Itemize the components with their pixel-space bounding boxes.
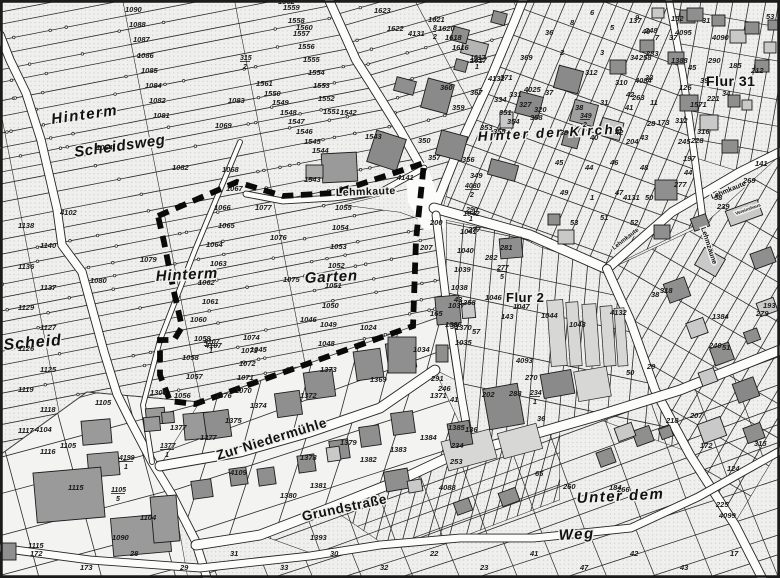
- svg-text:4104: 4104: [34, 425, 53, 434]
- svg-text:1545: 1545: [304, 137, 322, 146]
- svg-text:1085: 1085: [141, 66, 159, 75]
- svg-text:36: 36: [537, 414, 546, 423]
- svg-text:1369: 1369: [370, 375, 388, 384]
- svg-text:22: 22: [429, 549, 439, 558]
- svg-text:Flur 31: Flur 31: [706, 73, 755, 89]
- svg-text:45: 45: [554, 158, 564, 167]
- svg-text:1048: 1048: [318, 339, 336, 348]
- svg-text:1069: 1069: [215, 121, 233, 130]
- svg-text:318: 318: [660, 286, 673, 295]
- svg-text:1383: 1383: [390, 445, 408, 454]
- svg-text:1051: 1051: [325, 281, 342, 290]
- svg-text:1034: 1034: [413, 345, 431, 354]
- svg-text:4093: 4093: [515, 356, 534, 365]
- svg-text:1137: 1137: [40, 283, 57, 292]
- svg-text:359: 359: [452, 103, 465, 112]
- svg-text:137: 137: [629, 16, 642, 25]
- svg-text:1082: 1082: [172, 163, 190, 172]
- svg-text:350: 350: [418, 136, 431, 145]
- svg-text:2: 2: [469, 192, 474, 199]
- svg-text:41: 41: [624, 103, 633, 112]
- svg-text:310: 310: [615, 78, 628, 87]
- svg-text:4132: 4132: [609, 308, 628, 317]
- svg-text:185: 185: [729, 61, 742, 70]
- svg-text:1105: 1105: [60, 441, 77, 450]
- svg-text:1546: 1546: [296, 127, 314, 136]
- svg-text:37: 37: [545, 88, 554, 97]
- svg-text:44: 44: [584, 163, 594, 172]
- svg-text:1555: 1555: [303, 55, 321, 64]
- svg-text:246: 246: [437, 384, 451, 393]
- svg-text:4199: 4199: [118, 455, 135, 462]
- svg-text:1306: 1306: [150, 388, 168, 397]
- svg-text:1: 1: [165, 452, 169, 459]
- svg-text:42: 42: [614, 128, 624, 137]
- svg-text:1621: 1621: [428, 15, 445, 24]
- svg-text:1377: 1377: [160, 443, 177, 450]
- svg-text:124: 124: [727, 464, 740, 473]
- svg-text:1620: 1620: [438, 24, 456, 33]
- svg-text:288: 288: [508, 389, 522, 398]
- svg-text:4109: 4109: [229, 468, 248, 477]
- svg-text:1378: 1378: [300, 453, 318, 462]
- svg-text:234: 234: [450, 441, 464, 450]
- svg-text:1: 1: [475, 64, 479, 71]
- svg-text:4025: 4025: [523, 85, 542, 94]
- svg-text:31: 31: [230, 549, 238, 558]
- svg-text:36: 36: [545, 28, 554, 37]
- svg-text:172: 172: [700, 441, 713, 450]
- svg-text:30: 30: [330, 549, 339, 558]
- svg-text:1549: 1549: [272, 98, 290, 107]
- svg-text:245: 245: [677, 137, 691, 146]
- svg-text:1543: 1543: [365, 132, 383, 141]
- svg-text:4080: 4080: [464, 183, 481, 190]
- svg-text:1065: 1065: [218, 221, 236, 230]
- svg-text:315: 315: [240, 55, 252, 62]
- svg-text:1119: 1119: [18, 385, 34, 394]
- svg-text:136: 136: [465, 425, 478, 434]
- svg-text:1617: 1617: [470, 55, 487, 62]
- svg-text:357: 357: [428, 153, 441, 162]
- svg-text:270: 270: [524, 373, 538, 382]
- svg-text:51: 51: [722, 343, 730, 352]
- svg-text:260: 260: [562, 482, 576, 491]
- svg-text:320: 320: [534, 105, 547, 114]
- svg-text:28: 28: [129, 549, 139, 558]
- svg-text:1127: 1127: [40, 323, 57, 332]
- svg-text:172: 172: [30, 549, 43, 558]
- svg-text:277: 277: [673, 180, 687, 189]
- svg-text:1090: 1090: [112, 533, 130, 542]
- svg-text:39: 39: [560, 128, 569, 137]
- svg-text:1384: 1384: [712, 312, 730, 321]
- svg-text:1543: 1543: [304, 175, 322, 184]
- svg-text:1084: 1084: [145, 81, 163, 90]
- svg-text:28: 28: [646, 119, 656, 128]
- svg-text:269: 269: [742, 176, 756, 185]
- svg-text:1560: 1560: [296, 23, 314, 32]
- svg-text:1561: 1561: [256, 79, 273, 88]
- svg-text:367: 367: [470, 88, 483, 97]
- svg-text:126: 126: [679, 83, 692, 92]
- svg-text:1548: 1548: [280, 108, 298, 117]
- svg-text:1376: 1376: [215, 391, 233, 400]
- svg-text:1067: 1067: [226, 184, 244, 193]
- svg-text:1076: 1076: [270, 233, 288, 242]
- svg-text:1374: 1374: [250, 401, 268, 410]
- svg-text:5: 5: [116, 496, 120, 503]
- svg-text:1090: 1090: [125, 5, 143, 14]
- svg-text:1072: 1072: [239, 359, 257, 368]
- svg-text:277: 277: [496, 265, 510, 272]
- svg-text:29: 29: [179, 563, 189, 572]
- svg-text:33: 33: [450, 322, 459, 331]
- svg-text:4107: 4107: [203, 339, 221, 346]
- svg-text:23: 23: [479, 563, 489, 572]
- svg-text:1063: 1063: [210, 259, 228, 268]
- svg-text:1086: 1086: [137, 51, 155, 60]
- svg-text:1052: 1052: [328, 261, 346, 270]
- svg-text:1547: 1547: [288, 117, 306, 126]
- svg-text:1: 1: [469, 216, 473, 223]
- svg-text:1046: 1046: [485, 293, 503, 302]
- svg-text:248: 248: [644, 26, 658, 35]
- svg-text:34: 34: [630, 53, 639, 62]
- svg-text:1129: 1129: [18, 303, 35, 312]
- svg-text:1136: 1136: [18, 262, 35, 271]
- svg-text:263: 263: [631, 93, 645, 102]
- svg-text:239: 239: [716, 202, 730, 211]
- svg-text:1384: 1384: [420, 433, 438, 442]
- svg-text:1054: 1054: [332, 223, 350, 232]
- svg-text:282: 282: [484, 253, 498, 262]
- svg-text:53: 53: [766, 12, 775, 21]
- svg-text:1373: 1373: [320, 365, 338, 374]
- svg-text:1372: 1372: [300, 391, 318, 400]
- svg-text:34: 34: [722, 89, 731, 98]
- svg-text:33: 33: [280, 563, 289, 572]
- svg-text:4131: 4131: [407, 29, 425, 38]
- svg-text:1079: 1079: [140, 255, 158, 264]
- svg-text:17: 17: [730, 549, 739, 558]
- svg-text:1358: 1358: [459, 298, 477, 307]
- svg-text:1060: 1060: [190, 315, 208, 324]
- svg-text:1105: 1105: [111, 487, 126, 494]
- svg-text:1071: 1071: [237, 373, 254, 382]
- svg-text:1047: 1047: [513, 302, 531, 311]
- svg-text:65: 65: [535, 469, 544, 478]
- svg-text:369: 369: [520, 53, 533, 62]
- svg-text:1040: 1040: [457, 246, 475, 255]
- svg-text:279: 279: [755, 309, 769, 318]
- svg-text:4131: 4131: [622, 193, 640, 202]
- svg-text:1554: 1554: [308, 68, 326, 77]
- svg-text:4095: 4095: [674, 28, 693, 37]
- svg-text:51: 51: [600, 213, 608, 222]
- svg-text:349: 349: [470, 171, 483, 180]
- svg-text:41: 41: [449, 395, 458, 404]
- svg-text:221: 221: [706, 94, 720, 103]
- svg-text:1056: 1056: [174, 391, 192, 400]
- svg-text:4141: 4141: [396, 173, 414, 182]
- svg-text:1388: 1388: [671, 56, 689, 65]
- svg-text:1083: 1083: [228, 96, 246, 105]
- svg-text:1140: 1140: [40, 241, 57, 250]
- svg-text:49: 49: [559, 188, 569, 197]
- svg-text:1138: 1138: [18, 221, 35, 230]
- svg-text:1061: 1061: [202, 297, 219, 306]
- svg-text:52: 52: [630, 218, 639, 227]
- svg-text:1082: 1082: [149, 96, 167, 105]
- svg-text:349: 349: [580, 113, 592, 120]
- svg-text:355: 355: [493, 127, 506, 136]
- svg-text:1550: 1550: [264, 89, 282, 98]
- svg-text:1064: 1064: [96, 143, 114, 152]
- svg-text:40: 40: [589, 133, 599, 142]
- svg-text:1622: 1622: [387, 24, 405, 33]
- svg-text:50: 50: [645, 193, 654, 202]
- svg-text:207: 207: [419, 243, 433, 252]
- svg-text:1024: 1024: [360, 323, 378, 332]
- svg-text:1126: 1126: [18, 344, 35, 353]
- svg-text:43: 43: [639, 133, 649, 142]
- svg-text:29: 29: [646, 362, 656, 371]
- svg-text:152: 152: [671, 14, 684, 23]
- svg-text:1616: 1616: [452, 43, 470, 52]
- svg-text:46: 46: [609, 158, 619, 167]
- svg-text:1046: 1046: [300, 315, 318, 324]
- svg-text:1544: 1544: [312, 146, 330, 155]
- svg-text:1066: 1066: [214, 203, 232, 212]
- svg-text:1: 1: [533, 399, 537, 406]
- svg-text:1044: 1044: [541, 311, 559, 320]
- svg-text:281: 281: [499, 243, 513, 252]
- svg-text:1049: 1049: [320, 320, 338, 329]
- svg-text:228: 228: [690, 136, 704, 145]
- svg-text:1081: 1081: [153, 111, 170, 120]
- svg-text:351: 351: [499, 108, 512, 117]
- svg-text:234: 234: [529, 390, 542, 397]
- svg-text:1393: 1393: [310, 533, 328, 542]
- svg-text:38: 38: [651, 290, 660, 299]
- svg-text:41: 41: [529, 549, 538, 558]
- svg-text:1377: 1377: [200, 433, 218, 442]
- svg-text:50: 50: [626, 368, 635, 377]
- svg-text:1385: 1385: [448, 423, 466, 432]
- svg-text:1104: 1104: [140, 513, 157, 522]
- svg-text:4102: 4102: [59, 208, 78, 217]
- svg-text:38: 38: [575, 103, 584, 112]
- svg-text:173: 173: [657, 118, 670, 127]
- svg-text:2: 2: [582, 122, 587, 129]
- svg-text:1070: 1070: [235, 386, 253, 395]
- svg-text:197: 197: [683, 154, 696, 163]
- svg-text:207: 207: [689, 411, 703, 420]
- svg-text:4099: 4099: [718, 511, 737, 520]
- svg-text:291: 291: [430, 374, 444, 383]
- svg-text:1058: 1058: [182, 353, 200, 362]
- svg-text:1: 1: [124, 464, 128, 471]
- svg-text:358: 358: [530, 113, 543, 122]
- svg-text:1074: 1074: [243, 333, 261, 342]
- svg-text:45: 45: [687, 63, 697, 72]
- svg-text:312: 312: [585, 68, 598, 77]
- svg-text:1087: 1087: [133, 35, 151, 44]
- svg-text:290: 290: [465, 207, 478, 214]
- svg-text:1623: 1623: [374, 6, 392, 15]
- svg-text:225: 225: [715, 500, 729, 509]
- svg-text:1039: 1039: [454, 265, 472, 274]
- svg-text:356: 356: [462, 155, 475, 164]
- svg-text:44: 44: [683, 168, 693, 177]
- svg-text:312: 312: [675, 116, 688, 125]
- svg-text:1381: 1381: [310, 481, 327, 490]
- svg-text:53: 53: [570, 218, 579, 227]
- svg-text:1077: 1077: [255, 203, 273, 212]
- svg-text:1064: 1064: [206, 240, 224, 249]
- svg-text:31: 31: [702, 16, 710, 25]
- svg-text:173: 173: [80, 563, 93, 572]
- svg-text:1375: 1375: [225, 416, 243, 425]
- svg-text:1551: 1551: [323, 107, 340, 116]
- svg-text:1088: 1088: [129, 20, 147, 29]
- svg-text:1055: 1055: [335, 203, 353, 212]
- svg-text:43: 43: [679, 563, 689, 572]
- svg-text:212: 212: [750, 66, 764, 75]
- svg-text:1068: 1068: [222, 165, 240, 174]
- svg-text:4088: 4088: [438, 483, 457, 492]
- svg-text:1075: 1075: [283, 275, 301, 284]
- svg-text:4084: 4084: [634, 76, 653, 85]
- svg-text:1043: 1043: [569, 320, 587, 329]
- svg-text:1038: 1038: [451, 283, 469, 292]
- svg-text:204: 204: [625, 137, 639, 146]
- svg-text:141: 141: [755, 159, 768, 168]
- svg-text:1553: 1553: [313, 81, 331, 90]
- svg-text:371: 371: [500, 73, 513, 82]
- svg-text:1: 1: [590, 193, 594, 202]
- svg-text:1618: 1618: [445, 33, 463, 42]
- svg-text:240: 240: [708, 341, 722, 350]
- svg-text:1035: 1035: [455, 338, 473, 347]
- svg-text:8: 8: [433, 25, 437, 32]
- svg-text:202: 202: [481, 390, 495, 399]
- svg-text:1105: 1105: [95, 398, 112, 407]
- svg-text:39: 39: [700, 76, 709, 85]
- svg-text:1125: 1125: [40, 365, 57, 374]
- svg-text:1045: 1045: [250, 345, 268, 354]
- svg-text:1115: 1115: [68, 483, 84, 492]
- svg-text:Lehmkaute: Lehmkaute: [336, 185, 396, 199]
- svg-text:1050: 1050: [322, 301, 340, 310]
- svg-text:165: 165: [430, 309, 443, 318]
- svg-text:143: 143: [501, 312, 514, 321]
- svg-text:5: 5: [500, 274, 504, 281]
- svg-text:1080: 1080: [90, 276, 108, 285]
- svg-text:1552: 1552: [318, 94, 336, 103]
- svg-text:1380: 1380: [280, 491, 298, 500]
- svg-text:266: 266: [616, 485, 630, 494]
- svg-text:283: 283: [645, 49, 659, 58]
- svg-text:1057: 1057: [186, 372, 204, 381]
- svg-text:334: 334: [494, 95, 507, 104]
- svg-text:48: 48: [639, 163, 649, 172]
- svg-text:1571: 1571: [690, 100, 707, 109]
- svg-text:1053: 1053: [330, 242, 348, 251]
- svg-text:316: 316: [697, 127, 710, 136]
- svg-text:58: 58: [714, 193, 723, 202]
- svg-text:32: 32: [380, 563, 389, 572]
- svg-text:2: 2: [242, 64, 247, 71]
- svg-text:47: 47: [579, 563, 589, 572]
- svg-text:1377: 1377: [170, 423, 188, 432]
- svg-text:4090: 4090: [711, 33, 730, 42]
- svg-text:11: 11: [650, 98, 658, 107]
- svg-text:1117: 1117: [18, 426, 34, 435]
- svg-text:331: 331: [509, 90, 522, 99]
- svg-text:1542: 1542: [340, 108, 358, 117]
- svg-text:1118: 1118: [40, 405, 56, 414]
- svg-text:Weg: Weg: [558, 525, 595, 544]
- svg-text:290: 290: [707, 56, 721, 65]
- svg-text:354: 354: [507, 117, 520, 126]
- svg-text:327: 327: [519, 100, 532, 109]
- svg-text:315: 315: [754, 439, 767, 448]
- svg-text:1379: 1379: [340, 438, 358, 447]
- svg-text:2: 2: [432, 34, 437, 41]
- svg-text:1062: 1062: [198, 278, 216, 287]
- svg-text:2: 2: [559, 48, 565, 57]
- svg-text:200: 200: [429, 218, 443, 227]
- svg-text:218: 218: [665, 416, 679, 425]
- svg-text:1: 1: [209, 348, 213, 355]
- svg-text:1116: 1116: [40, 447, 56, 456]
- svg-text:277: 277: [467, 225, 481, 234]
- svg-text:353: 353: [480, 123, 493, 132]
- svg-text:360: 360: [440, 83, 453, 92]
- svg-text:253: 253: [449, 457, 463, 466]
- svg-text:57: 57: [472, 327, 481, 336]
- svg-text:42: 42: [629, 549, 639, 558]
- svg-text:31: 31: [600, 98, 608, 107]
- svg-text:1556: 1556: [298, 42, 316, 51]
- svg-text:1382: 1382: [360, 455, 378, 464]
